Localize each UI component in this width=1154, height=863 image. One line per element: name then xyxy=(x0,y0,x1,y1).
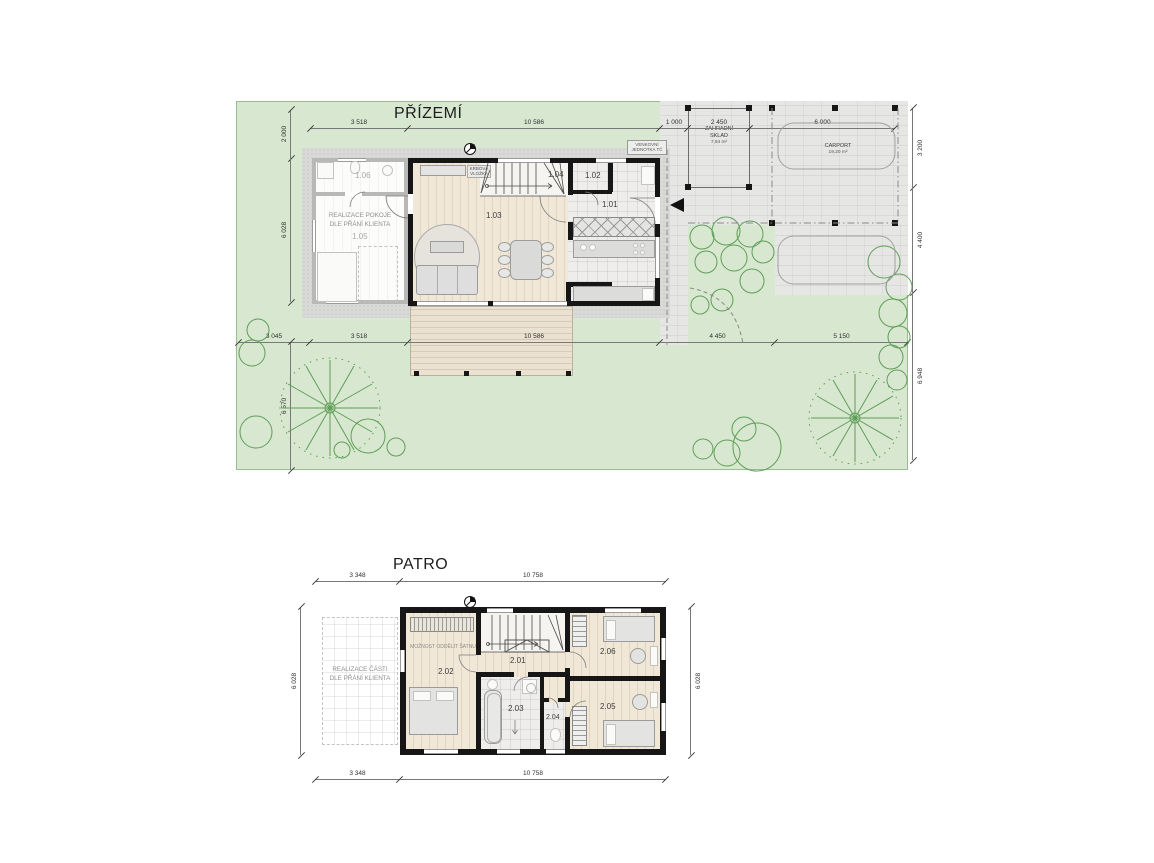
room-label-205: 2.05 xyxy=(600,703,616,711)
dim-right-3200: 3 200 xyxy=(912,108,913,187)
annex-note: REALIZACE POKOJE DLE PŘÁNÍ KLIENTA xyxy=(320,212,400,229)
floorplan-sheet: VENKOVNÍ JEDNOTKA TČ KRBOVÁ VLOŽKA ZAHRA… xyxy=(0,0,1154,863)
carport-name: CARPORT xyxy=(808,143,868,150)
dim-left-2000: 2 000 xyxy=(290,110,291,158)
dim-top-6000: 6 000 xyxy=(750,128,895,129)
house-patro-walls xyxy=(400,607,666,755)
room-label-202: 2.02 xyxy=(438,668,454,676)
room-label-105: 1.05 xyxy=(352,233,368,241)
dim-patro-right-6028: 6 028 xyxy=(690,607,691,755)
shed-post xyxy=(746,105,752,111)
room-label-103: 1.03 xyxy=(486,212,502,220)
window-north xyxy=(605,608,641,613)
dim-bottom-10586: 10 586 xyxy=(408,342,660,343)
dim-bottom-4450: 4 450 xyxy=(660,342,775,343)
dim-patro-top-10758: 10 758 xyxy=(400,581,666,582)
fireplace-box: KRBOVÁ VLOŽKA xyxy=(467,165,491,178)
carport-post xyxy=(832,220,838,226)
dim-right-4400: 4 400 xyxy=(912,187,913,292)
carport-label: CARPORT 19,20 m² xyxy=(808,143,868,156)
window-south xyxy=(424,749,458,754)
dim-top-10586: 10 586 xyxy=(408,128,660,129)
house-groundfloor-walls xyxy=(408,158,660,306)
annex-shower xyxy=(317,162,334,179)
room-label-102: 1.02 xyxy=(585,172,601,180)
deck-post xyxy=(464,371,469,376)
room-label-204: 2.04 xyxy=(546,714,560,721)
dim-bottom-5150: 5 150 xyxy=(775,342,908,343)
room-label-104: 1.04 xyxy=(548,171,564,179)
window-east xyxy=(661,638,666,660)
deck-post xyxy=(414,371,419,376)
window-west xyxy=(400,650,405,672)
outdoor-unit-box: VENKOVNÍ JEDNOTKA TČ xyxy=(627,140,667,155)
dim-patro-bottom-10758: 10 758 xyxy=(400,779,666,780)
dim-top-2450: 2 450 xyxy=(688,128,750,129)
dim-left-6570: 6 570 xyxy=(290,342,291,470)
carport-post xyxy=(892,105,898,111)
annex-door-gap xyxy=(345,192,362,196)
dim-patro-bottom-3348: 3 348 xyxy=(315,779,400,780)
dim-left-6028: 6 028 xyxy=(290,158,291,302)
dim-bottom-3518: 3 518 xyxy=(310,342,408,343)
window-south xyxy=(497,749,520,754)
dim-patro-left-6028: 6 028 xyxy=(300,607,301,755)
terrace-deck xyxy=(410,306,573,376)
outdoor-unit-note: VENKOVNÍ JEDNOTKA TČ xyxy=(628,142,666,152)
plan-title-patro: PATRO xyxy=(393,556,448,574)
deck-post xyxy=(516,371,521,376)
room-label-203: 2.03 xyxy=(508,705,524,713)
annex-dashed-partition xyxy=(358,246,398,302)
room-label-206: 2.06 xyxy=(600,648,616,656)
window-north xyxy=(498,158,550,163)
shed-post xyxy=(746,184,752,190)
window-north xyxy=(487,608,513,613)
terrace-glass-door xyxy=(493,301,567,306)
window-south xyxy=(546,749,565,754)
north-indicator-patro xyxy=(465,597,476,608)
dim-patro-top-3348: 3 348 xyxy=(315,581,400,582)
paved-side-area xyxy=(775,225,908,295)
window-east xyxy=(655,237,660,278)
carport-area: 19,20 m² xyxy=(808,150,868,156)
annex-bed xyxy=(317,252,357,302)
deck-post xyxy=(566,371,571,376)
shed-area: 7,84 m² xyxy=(689,140,749,146)
dim-right-6948: 6 948 xyxy=(912,292,913,460)
annex-sink xyxy=(382,165,393,176)
carport-post xyxy=(769,105,775,111)
satna-note: MOŽNOST ODDĚLIT ŠATNU xyxy=(409,644,477,650)
carport-post xyxy=(832,105,838,111)
dim-top-1000: 1 000 xyxy=(660,128,688,129)
fireplace-note: KRBOVÁ VLOŽKA xyxy=(468,166,490,176)
room-label-106: 1.06 xyxy=(355,172,371,180)
room-label-201: 2.01 xyxy=(510,657,526,665)
window-east xyxy=(661,703,666,731)
dim-top-3518: 3 518 xyxy=(310,128,408,129)
dim-bottom-3045: 3 045 xyxy=(238,342,310,343)
entry-door-gap xyxy=(655,197,660,224)
carport-post xyxy=(769,220,775,226)
annex-connection-gap xyxy=(408,194,413,214)
terrace-glass-door xyxy=(417,301,488,306)
window-north xyxy=(596,158,626,163)
room-label-101: 1.01 xyxy=(602,201,618,209)
shed-post xyxy=(685,184,691,190)
shed-post xyxy=(685,105,691,111)
patro-future-note: REALIZACE ČÁSTI DLE PŘÁNÍ KLIENTA xyxy=(324,666,396,683)
carport-post xyxy=(892,220,898,226)
plan-title-prizemi: PŘÍZEMÍ xyxy=(394,105,462,123)
annex-window xyxy=(312,220,316,252)
